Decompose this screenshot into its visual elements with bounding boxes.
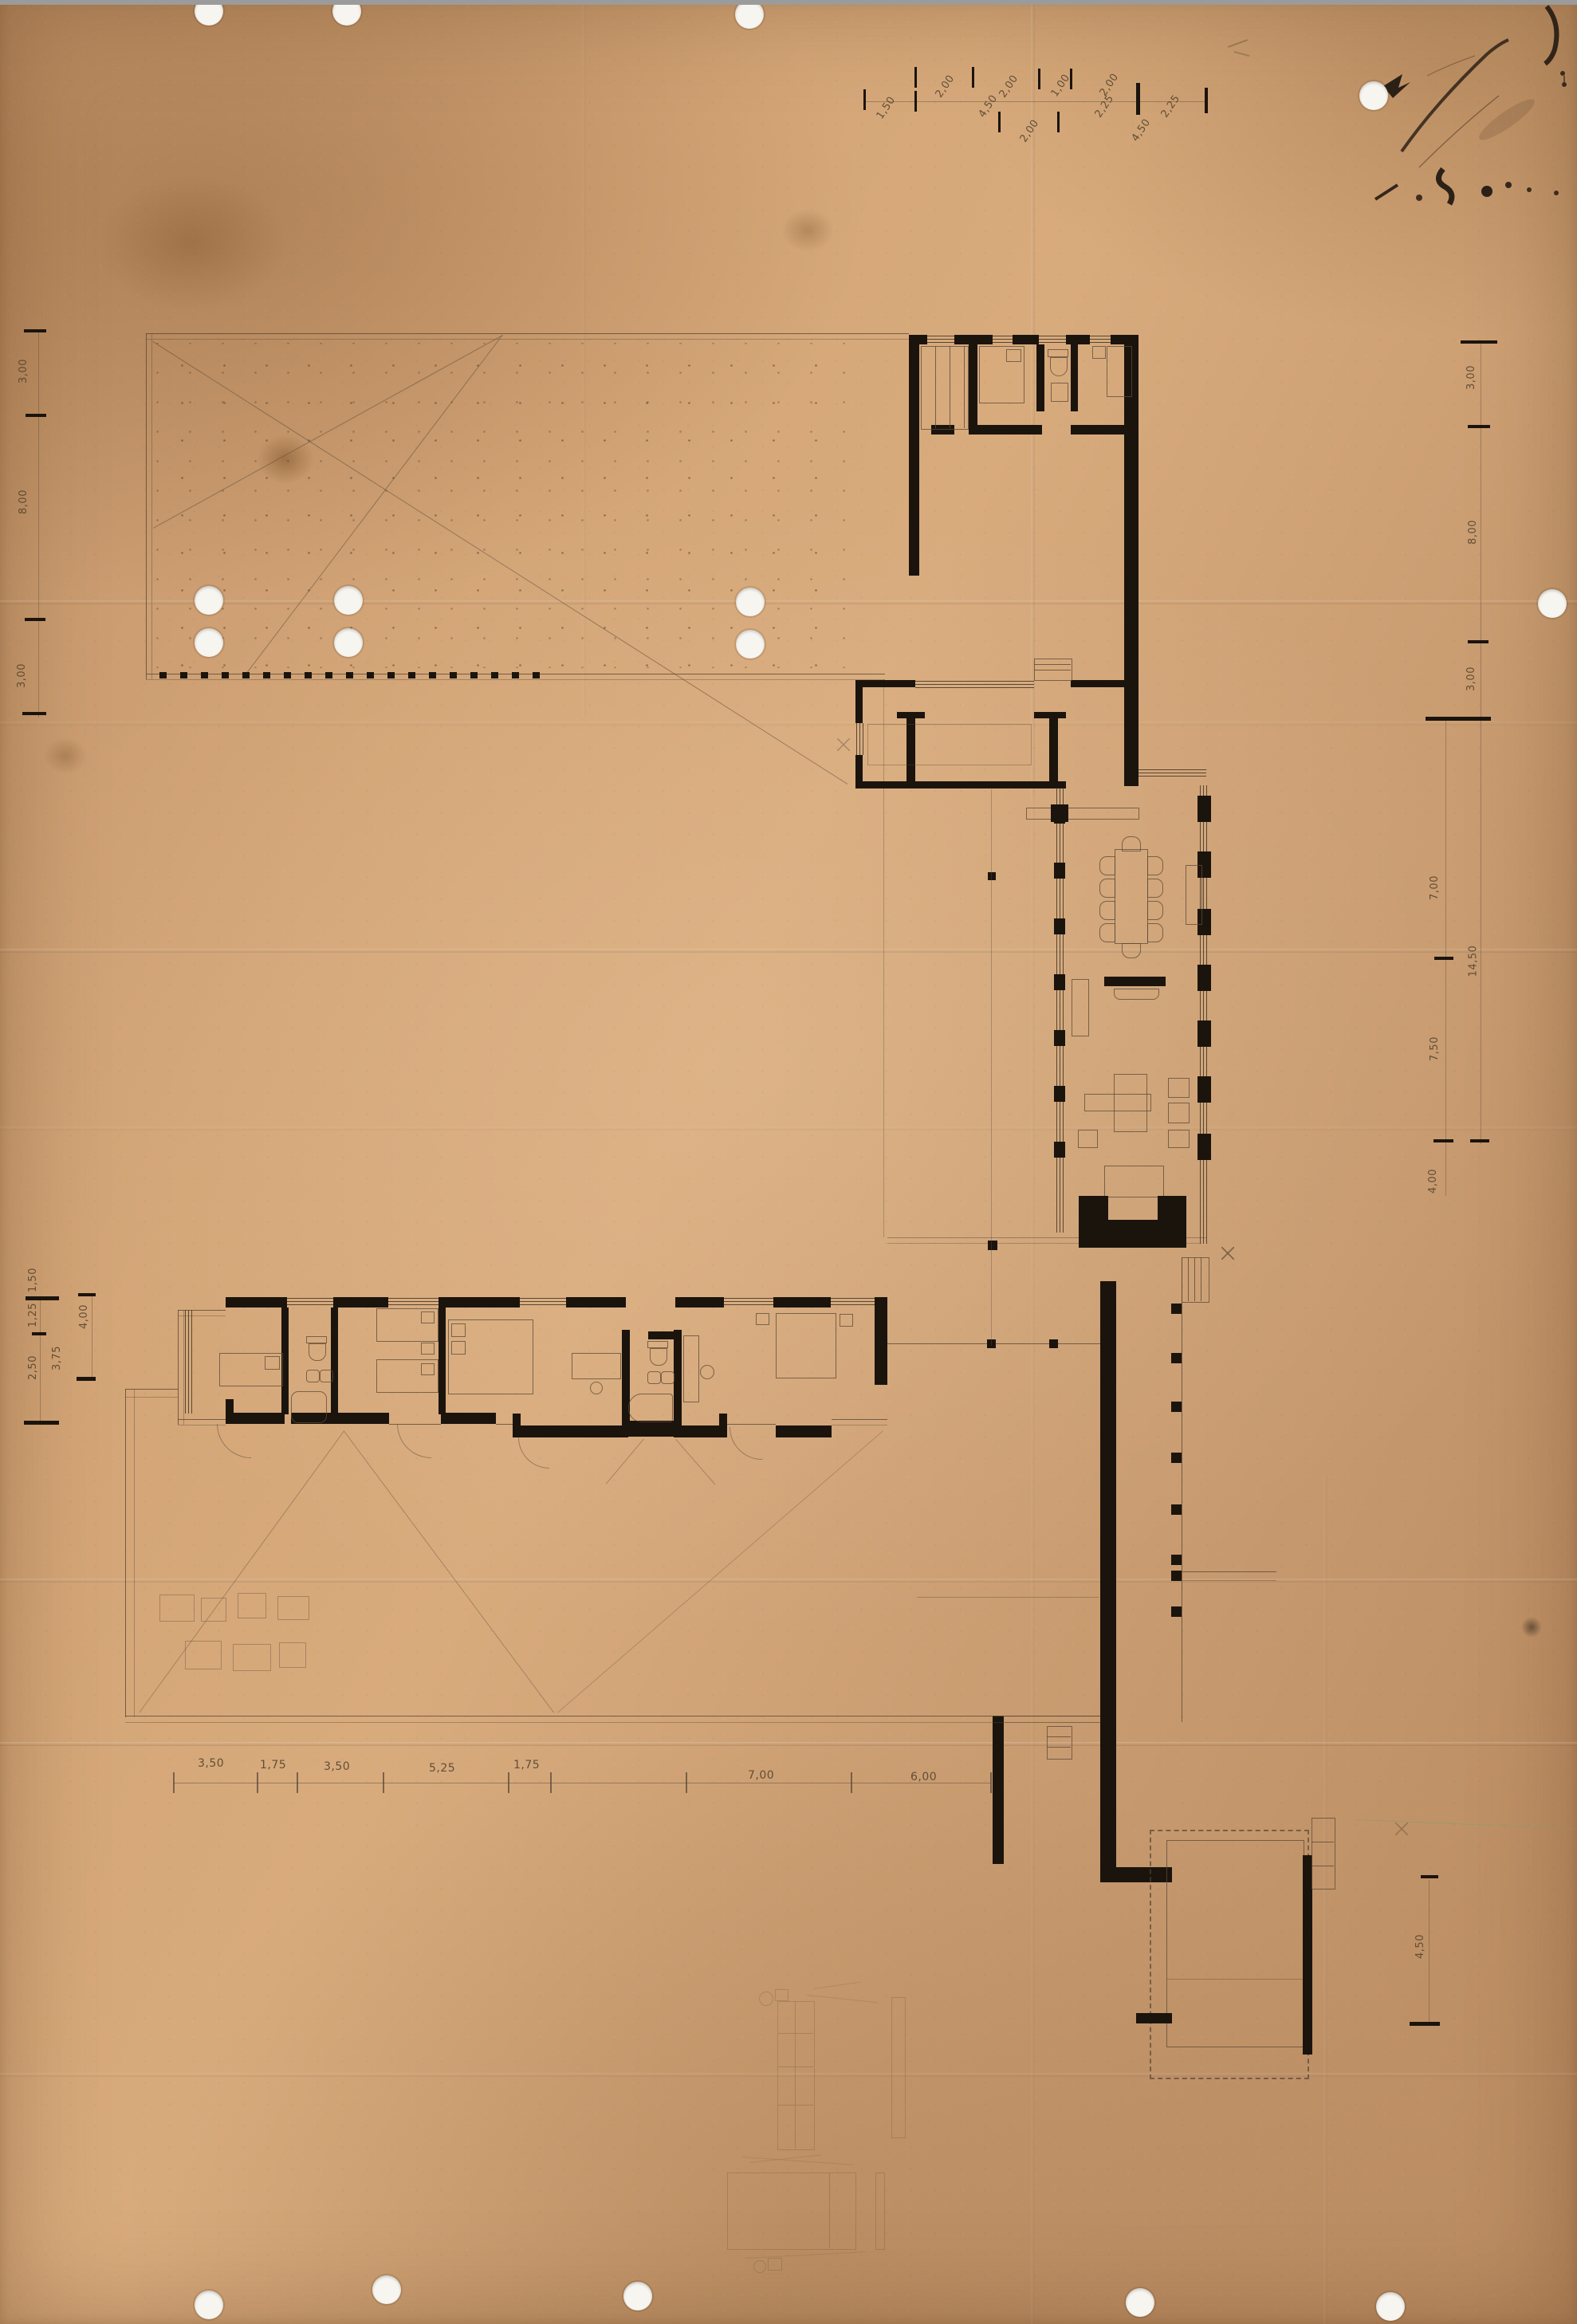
nightstand <box>756 1313 769 1325</box>
low-wall <box>1104 977 1166 986</box>
sketch-line <box>829 2173 830 2248</box>
pier-line <box>1182 1580 1276 1581</box>
punch-hole <box>195 586 223 615</box>
dim-tick <box>1461 340 1497 344</box>
step-line <box>1312 1866 1334 1866</box>
punch-hole <box>1538 589 1567 618</box>
walkway-column <box>988 1241 997 1250</box>
pier-line <box>1182 1571 1276 1572</box>
fold-crease <box>1031 797 1035 2324</box>
wall-segment <box>226 1413 285 1424</box>
wall-flange <box>719 1414 727 1425</box>
chair <box>1147 856 1163 875</box>
door-swing <box>730 1427 762 1460</box>
pergola-column <box>305 672 312 678</box>
dim-tick <box>508 1772 509 1793</box>
chair <box>1099 856 1115 875</box>
dim-label: 6,00 <box>910 1771 937 1783</box>
pergola-column <box>533 672 540 678</box>
steps <box>1312 1818 1335 1889</box>
pillow <box>265 1356 280 1370</box>
dim-label: 1,75 <box>260 1759 286 1772</box>
sofa <box>1084 1094 1151 1111</box>
bed <box>776 1313 836 1378</box>
sketch-line <box>795 2001 796 2149</box>
mullion <box>1197 1020 1211 1047</box>
ink-blot <box>1521 1617 1542 1638</box>
punch-hole <box>736 588 765 616</box>
partition <box>969 344 977 435</box>
dim-label: 3,00 <box>1465 365 1477 390</box>
punch-hole <box>334 628 363 657</box>
sketch-knob <box>768 2258 782 2271</box>
wall-segment <box>566 1297 626 1307</box>
nightstand <box>1092 346 1106 359</box>
window <box>1039 336 1066 343</box>
fold-crease <box>1323 1475 1327 2324</box>
step-line <box>1034 664 1071 665</box>
porch-line <box>178 1310 179 1425</box>
dining-table <box>1115 849 1148 944</box>
chair <box>1147 879 1163 898</box>
pier-cap <box>897 712 925 718</box>
wall-segment <box>1013 335 1039 344</box>
mullion <box>1054 918 1065 934</box>
wall-segment <box>675 1297 724 1307</box>
sketch-knob <box>759 1992 773 2006</box>
wall-segment <box>441 1413 496 1424</box>
window <box>993 336 1013 343</box>
cabinet <box>1072 979 1089 1036</box>
window <box>831 1298 875 1305</box>
dim-tick <box>173 1772 175 1793</box>
window <box>927 336 954 343</box>
wall-segment <box>513 1425 628 1437</box>
dim-tick <box>257 1772 258 1793</box>
stool <box>700 1365 714 1379</box>
dim-label: 4,00 <box>78 1304 90 1329</box>
pillow <box>451 1341 466 1355</box>
punch-hole <box>372 2275 401 2304</box>
dim-tick <box>25 618 45 621</box>
dim-label: 2,50 <box>27 1355 39 1380</box>
dim-tick <box>1136 83 1140 115</box>
paper-stain <box>781 209 834 252</box>
sketch-knob <box>775 1989 788 2001</box>
courtyard-edge <box>146 333 909 334</box>
courtyard-edge <box>151 333 152 679</box>
door-swing <box>397 1424 431 1458</box>
dimension-line <box>92 1296 92 1381</box>
walkway-column <box>1171 1453 1182 1463</box>
toilet-tank <box>1048 349 1068 357</box>
gallery-line <box>1182 1257 1182 1722</box>
garden-wall <box>134 1389 135 1717</box>
partition <box>331 1307 338 1414</box>
punch-hole <box>736 630 765 659</box>
court-wall <box>993 1716 1004 1864</box>
sink <box>647 1371 661 1384</box>
steps <box>1047 1726 1072 1760</box>
sketch-squiggle <box>807 1995 879 2003</box>
courtyard-edge <box>146 679 885 680</box>
court-line <box>917 1597 1099 1598</box>
sketch-squiggle <box>745 2251 865 2259</box>
dim-label: 14,50 <box>1467 946 1479 977</box>
erased-sketch <box>201 1598 226 1622</box>
walkway-wall <box>1100 1281 1116 1869</box>
dim-tick <box>686 1772 687 1793</box>
dim-label: 4,50 <box>977 92 1001 120</box>
wall-flange <box>513 1414 521 1425</box>
sink <box>320 1370 333 1382</box>
stool <box>590 1382 603 1394</box>
porch-line <box>183 1310 184 1425</box>
nightstand <box>840 1314 853 1327</box>
door-swing <box>518 1437 549 1469</box>
terrace-line <box>1166 1979 1303 1980</box>
mullion <box>1054 1030 1065 1046</box>
pergola-column <box>367 672 374 678</box>
chair <box>1099 923 1115 942</box>
walkway-column <box>1171 1353 1182 1363</box>
wall-segment <box>1071 425 1124 435</box>
dim-label: 2,25 <box>1159 92 1183 120</box>
punch-hole <box>334 586 363 615</box>
terrace-slab <box>1166 1840 1304 2047</box>
wall-segment <box>1136 2013 1172 2023</box>
dim-tick <box>550 1772 552 1793</box>
glazing-line <box>727 1424 776 1425</box>
chair <box>1147 901 1163 920</box>
dim-label: 3,50 <box>198 1757 224 1770</box>
dim-tick <box>1410 2022 1440 2026</box>
wall-segment <box>875 1297 887 1385</box>
step-line <box>1034 670 1071 670</box>
dim-label: 5,25 <box>429 1762 455 1775</box>
dim-tick <box>1421 1875 1438 1878</box>
dim-tick <box>1468 425 1490 428</box>
sketch-post <box>891 1997 906 2138</box>
garden-wall <box>125 1389 178 1390</box>
partition <box>438 1307 446 1414</box>
porch-line <box>178 1419 226 1420</box>
sink <box>306 1370 320 1382</box>
wall-segment <box>773 1297 831 1307</box>
dim-label: 1,25 <box>27 1303 39 1327</box>
dim-label: 4,00 <box>1427 1169 1439 1193</box>
door-swing <box>217 1424 251 1458</box>
pier-cap <box>1034 712 1066 718</box>
erased-sketch <box>185 1641 222 1669</box>
wall-segment <box>776 1425 832 1437</box>
dim-label: 2,00 <box>1098 71 1122 98</box>
stair <box>1182 1257 1209 1303</box>
window <box>520 1298 566 1305</box>
garden-wall <box>125 1716 1099 1716</box>
dim-label: 1,50 <box>27 1268 39 1292</box>
bench <box>1114 989 1159 1000</box>
partition <box>1036 344 1044 411</box>
dim-tick <box>998 112 1001 132</box>
dim-label: 2,00 <box>1018 117 1042 144</box>
toilet <box>309 1343 326 1361</box>
setting-out-line <box>344 1431 554 1713</box>
pergola-column <box>450 672 457 678</box>
pergola-column <box>180 672 187 678</box>
mullion <box>1197 1076 1211 1103</box>
pergola-column <box>491 672 498 678</box>
dim-tick <box>1433 1139 1453 1142</box>
closet <box>921 346 969 430</box>
wall-segment <box>333 1297 388 1307</box>
side-table <box>1168 1130 1190 1148</box>
wall-segment <box>855 680 915 687</box>
path-line <box>675 1439 715 1484</box>
pencil-x-mark <box>837 738 850 751</box>
pier <box>1049 718 1058 785</box>
pencil-scribble <box>1233 51 1249 57</box>
setting-out-line <box>557 1430 883 1713</box>
pergola-column <box>429 672 436 678</box>
closet-shelf <box>950 346 950 428</box>
dim-tick <box>851 1772 852 1793</box>
walkway-column <box>1171 1402 1182 1412</box>
wall-segment <box>226 1297 287 1307</box>
sketch-squiggle <box>813 1982 861 1989</box>
mullion <box>1054 863 1065 879</box>
closet-shelf <box>935 346 936 428</box>
paper-stain <box>96 175 287 311</box>
washstand <box>1051 383 1068 402</box>
side-table <box>1078 1130 1098 1148</box>
dim-tick <box>914 91 917 112</box>
dim-label: 3,00 <box>16 663 28 688</box>
glazing-line <box>496 1424 513 1425</box>
dim-label: 8,00 <box>1467 520 1479 545</box>
window <box>1139 769 1206 777</box>
erased-sketch <box>277 1596 309 1620</box>
pencil-x-mark <box>1395 1823 1408 1835</box>
nightstand <box>421 1343 435 1355</box>
chair <box>1147 923 1163 942</box>
dim-tick <box>1434 957 1453 960</box>
step-line <box>1047 1736 1071 1737</box>
dim-tick <box>1057 112 1060 132</box>
wall-segment <box>1071 680 1124 687</box>
mullion <box>1054 1086 1065 1102</box>
dim-tick <box>32 1332 46 1335</box>
side-table <box>1168 1078 1190 1098</box>
pergola-column <box>346 672 353 678</box>
punch-hole <box>623 2282 652 2310</box>
fold-crease <box>0 949 1577 953</box>
dimension-line <box>38 331 39 718</box>
garden-wall <box>125 1722 1099 1723</box>
wall-segment <box>855 680 863 723</box>
sink <box>661 1371 674 1384</box>
pergola-column <box>222 672 229 678</box>
pillow <box>421 1311 435 1323</box>
erased-sketch <box>238 1593 266 1618</box>
pergola-column <box>470 672 478 678</box>
dim-label: 3,75 <box>51 1346 63 1370</box>
partition <box>648 1331 676 1339</box>
sketch-knob <box>753 2260 766 2273</box>
wall-segment <box>438 1297 520 1307</box>
pillow <box>1006 349 1021 362</box>
dim-tick <box>1468 640 1489 643</box>
window <box>915 681 1034 688</box>
dim-label: 1,00 <box>1049 72 1073 99</box>
pergola-column <box>325 672 332 678</box>
pergola-column <box>242 672 250 678</box>
mullion <box>1054 974 1065 990</box>
walkway-column <box>1171 1606 1182 1617</box>
step-line <box>1047 1747 1071 1748</box>
dim-label: 2,00 <box>997 73 1021 100</box>
dim-label: 1,75 <box>513 1759 540 1772</box>
glazing-line <box>832 1419 887 1420</box>
toilet <box>650 1348 667 1366</box>
step-line <box>1312 1842 1334 1842</box>
garden-wall <box>125 1397 178 1398</box>
chair <box>1099 901 1115 920</box>
fold-crease <box>0 722 1577 726</box>
courtyard-edge <box>146 333 147 679</box>
erased-sketch <box>279 1642 306 1668</box>
dim-tick <box>24 1421 59 1425</box>
mullion <box>1051 804 1068 822</box>
dim-label: 4,50 <box>1130 116 1154 144</box>
pergola-column <box>408 672 415 678</box>
fireplace <box>1079 1220 1186 1248</box>
mullion <box>1054 1142 1065 1158</box>
partition <box>1071 344 1078 411</box>
dim-label: 3,00 <box>18 359 29 383</box>
dim-label: 7,00 <box>1429 875 1441 900</box>
window <box>856 723 863 755</box>
window <box>1090 336 1111 343</box>
mullion <box>1197 1134 1211 1160</box>
walkway-column <box>1171 1504 1182 1515</box>
walkway-column <box>1171 1571 1182 1581</box>
chair <box>1122 836 1141 851</box>
stair-tread <box>1188 1257 1189 1301</box>
punch-hole <box>195 2291 223 2319</box>
glazed-wall <box>1056 788 1064 1233</box>
dim-tick <box>1038 69 1040 89</box>
wall-segment <box>1066 335 1090 344</box>
stair-tread <box>1201 1257 1201 1301</box>
side-table <box>1168 1103 1190 1123</box>
wall-segment <box>855 781 1066 788</box>
window <box>185 1310 192 1414</box>
pillow <box>451 1323 466 1337</box>
dimension-line <box>1429 1880 1430 2023</box>
walkway-column <box>1171 1304 1182 1314</box>
dimension-line <box>173 1783 991 1783</box>
gravel-stipple <box>155 343 857 668</box>
desk <box>572 1353 621 1379</box>
gallery-line <box>991 789 992 1346</box>
chair <box>1099 879 1115 898</box>
pergola-column <box>263 672 270 678</box>
paper-stain <box>44 737 87 774</box>
sideboard <box>1026 808 1139 820</box>
cabinet <box>683 1335 699 1402</box>
dim-tick <box>383 1772 384 1793</box>
dim-tick <box>24 329 46 332</box>
dim-tick <box>914 67 917 88</box>
dim-tick <box>972 67 974 88</box>
dim-label: 3,50 <box>324 1760 350 1773</box>
fold-crease <box>0 1742 1577 1746</box>
green-pencil-line <box>1355 1819 1575 1829</box>
toilet-tank <box>647 1341 668 1348</box>
closet-shelf <box>964 346 965 428</box>
dimension-line <box>40 1296 41 1425</box>
dim-tick <box>297 1772 298 1793</box>
pencil-x-mark <box>1221 1247 1234 1260</box>
toilet-tank <box>306 1336 327 1343</box>
mullion <box>1197 965 1211 991</box>
window <box>388 1298 438 1305</box>
chair <box>1122 943 1141 958</box>
pergola-column <box>201 672 208 678</box>
walkway-column <box>988 872 996 880</box>
glazing-line <box>832 1425 887 1425</box>
path-line <box>606 1438 644 1484</box>
dim-tick <box>1426 717 1491 721</box>
scanner-edge <box>0 0 1577 5</box>
dim-label: 1,50 <box>875 94 899 121</box>
pergola-column <box>159 672 167 678</box>
vestibule-outline <box>867 724 1032 765</box>
wall-west <box>909 335 919 576</box>
dim-label: 3,00 <box>1465 667 1477 691</box>
dim-tick <box>1205 88 1208 113</box>
bed <box>1107 346 1132 397</box>
courtyard-edge <box>146 339 909 340</box>
dim-tick <box>78 1293 96 1296</box>
dim-tick <box>26 414 46 417</box>
wall-segment <box>674 1425 727 1437</box>
punch-hole <box>195 628 223 657</box>
pergola-column <box>284 672 291 678</box>
dim-tick <box>990 1772 992 1793</box>
pillow <box>421 1363 435 1375</box>
garden-wall <box>125 1389 126 1717</box>
dim-label: 4,50 <box>1414 1934 1426 1959</box>
dim-tick <box>22 712 46 715</box>
toilet <box>1050 357 1068 376</box>
wall-segment <box>954 335 993 344</box>
wall-segment <box>626 1421 676 1437</box>
sketch-post <box>875 2173 885 2250</box>
stair-tread <box>1194 1257 1195 1301</box>
pencil-scribble <box>1228 39 1248 48</box>
bathtub <box>291 1391 327 1423</box>
punch-hole <box>1126 2288 1154 2317</box>
dim-label: 2,00 <box>934 73 958 100</box>
bathtub <box>628 1394 673 1422</box>
erased-sketch <box>233 1644 271 1671</box>
punch-hole <box>1359 81 1388 110</box>
erased-sketch <box>159 1595 195 1622</box>
sideboard <box>1186 865 1202 925</box>
walkway-column <box>1171 1555 1182 1565</box>
